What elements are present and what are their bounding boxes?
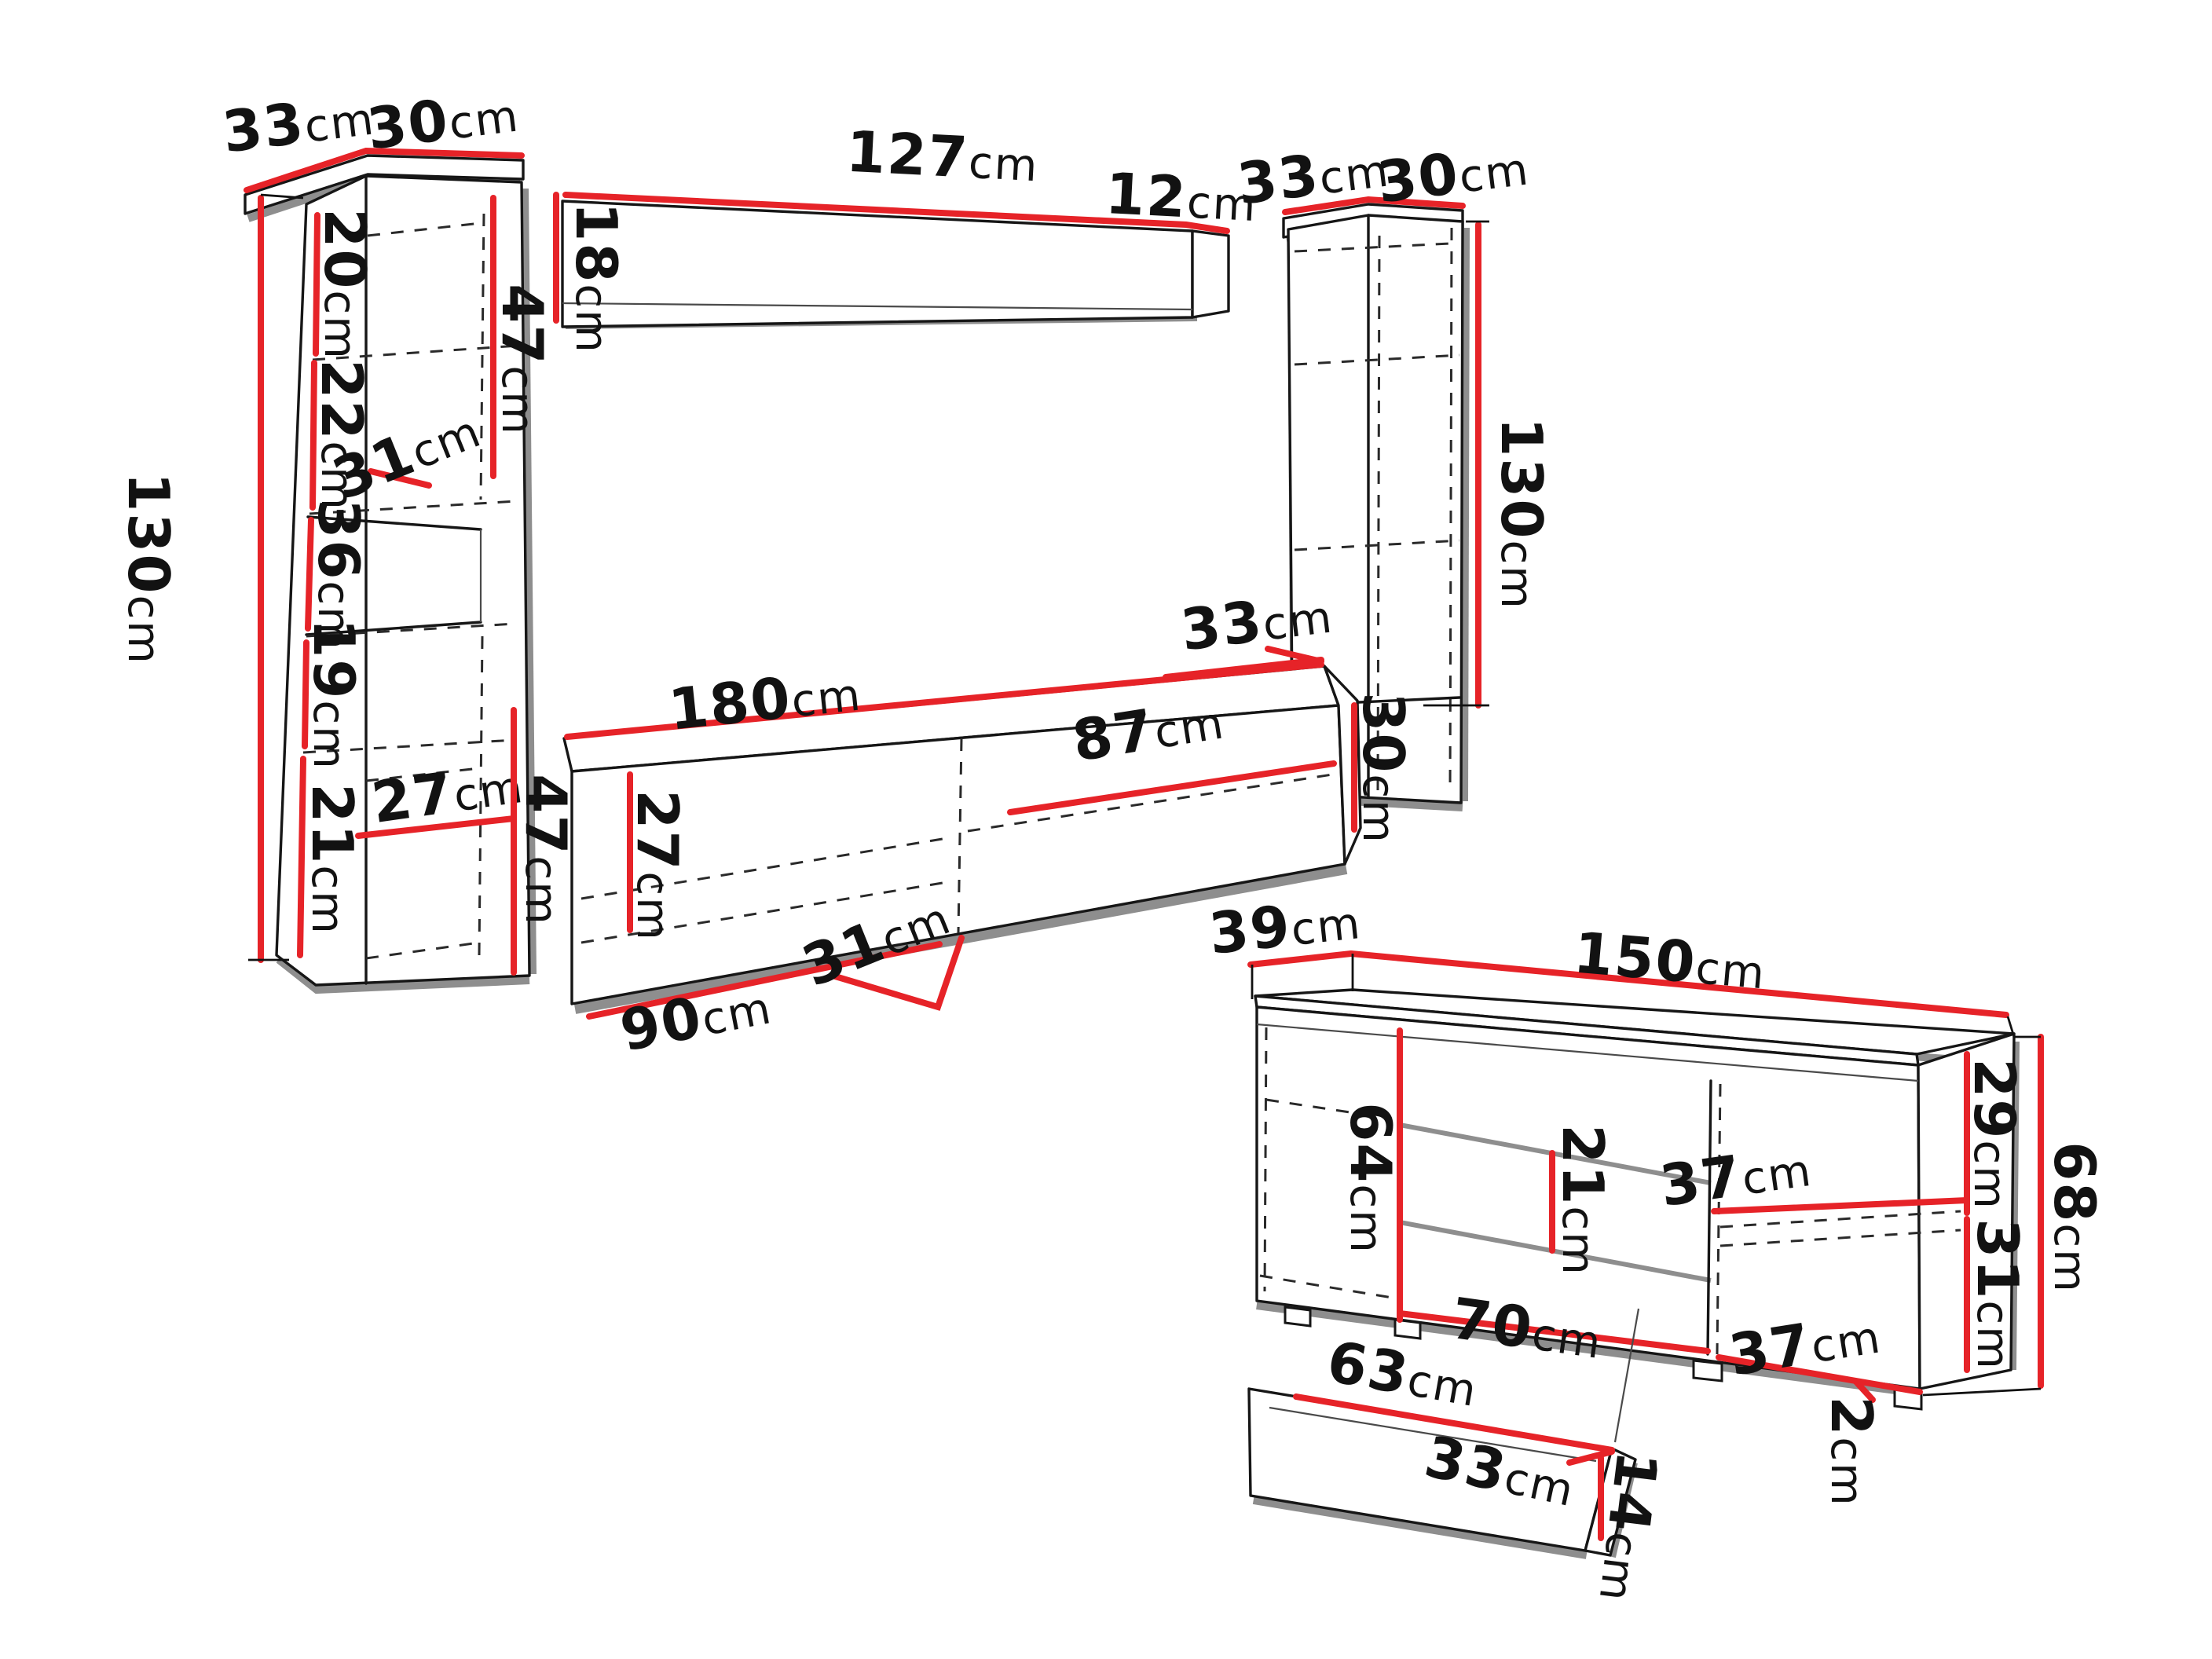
foot: [1694, 1361, 1722, 1381]
shelf-end-cap: [1192, 231, 1229, 317]
furniture-dimension-diagram: 33cm 30cm 130cm 20cm 22cm 36cm 19cm 21cm…: [0, 0, 2212, 1659]
foot: [1285, 1307, 1310, 1326]
diagram-canvas: 33cm 30cm 130cm 20cm 22cm 36cm 19cm 21cm…: [0, 0, 2212, 1659]
shadow: [1464, 228, 1466, 801]
